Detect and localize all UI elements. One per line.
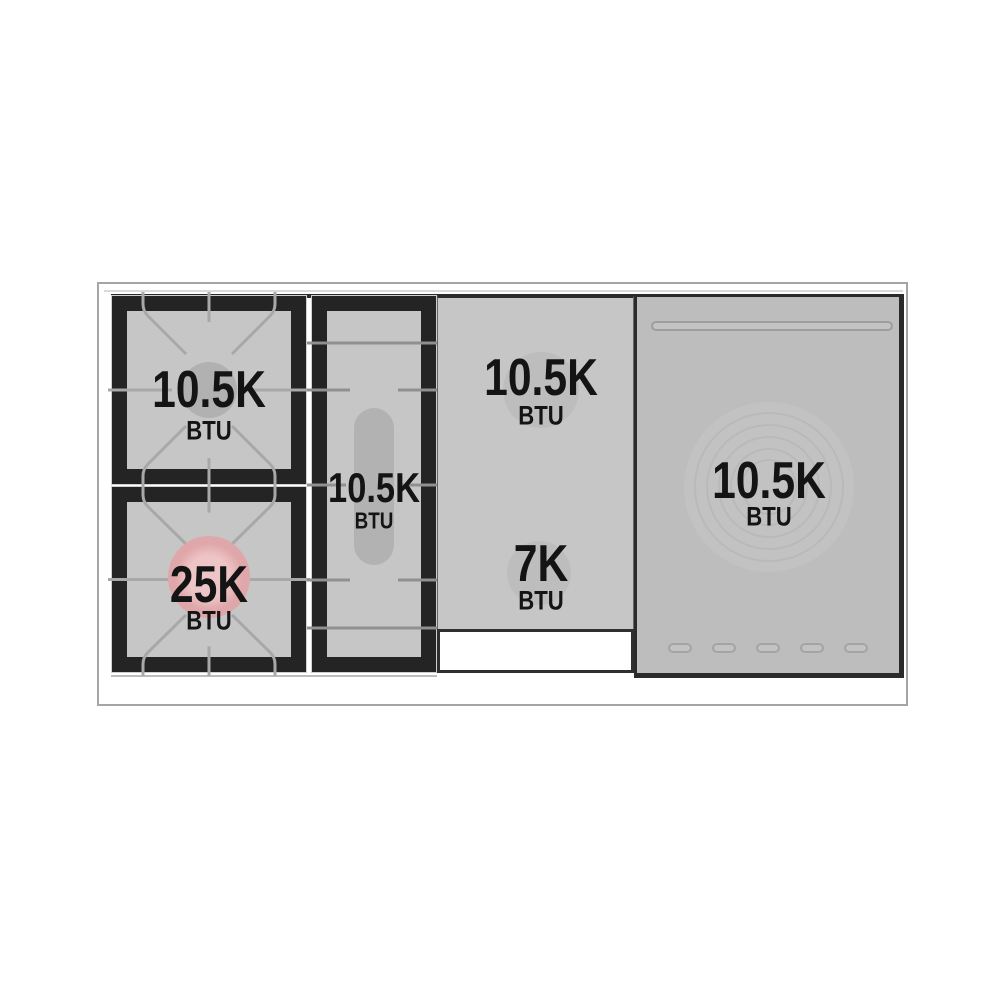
vent-slot-icon <box>800 643 824 653</box>
center-oval-burner-grate: 10.5K BTU <box>312 296 436 672</box>
center-oval-burner-unit: BTU <box>355 510 394 533</box>
griddle-panel: 10.5K BTU 7K BTU <box>437 295 634 629</box>
rangetop-diagram: 10.5K BTU 25K BTU <box>0 0 1000 1000</box>
french-top-burner-value: 10.5K <box>712 455 826 507</box>
vent-slot-icon <box>712 643 736 653</box>
griddle-front-tray <box>437 629 634 673</box>
top-edge-highlight <box>104 290 903 292</box>
left-front-burner-unit: BTU <box>186 608 232 635</box>
griddle-rear-burner-unit: BTU <box>518 403 564 430</box>
griddle-rear-burner-value: 10.5K <box>484 352 598 404</box>
griddle-front-burner-value: 7K <box>514 538 569 590</box>
vent-slot-icon <box>756 643 780 653</box>
vent-slot-icon <box>668 643 692 653</box>
griddle-front-burner-unit: BTU <box>518 588 564 615</box>
left-rear-burner-unit: BTU <box>186 418 232 445</box>
french-top-burner-unit: BTU <box>746 504 792 531</box>
center-oval-burner-value: 10.5K <box>328 467 420 509</box>
left-rear-burner-value: 10.5K <box>152 364 266 416</box>
left-rear-burner-grate: 10.5K BTU <box>112 296 306 484</box>
left-front-burner-grate: 25K BTU <box>112 487 306 672</box>
left-front-burner-value: 25K <box>170 559 248 611</box>
vent-slot-icon <box>844 643 868 653</box>
handle-bar-icon <box>651 321 893 331</box>
french-top-panel: 10.5K BTU <box>634 294 904 678</box>
